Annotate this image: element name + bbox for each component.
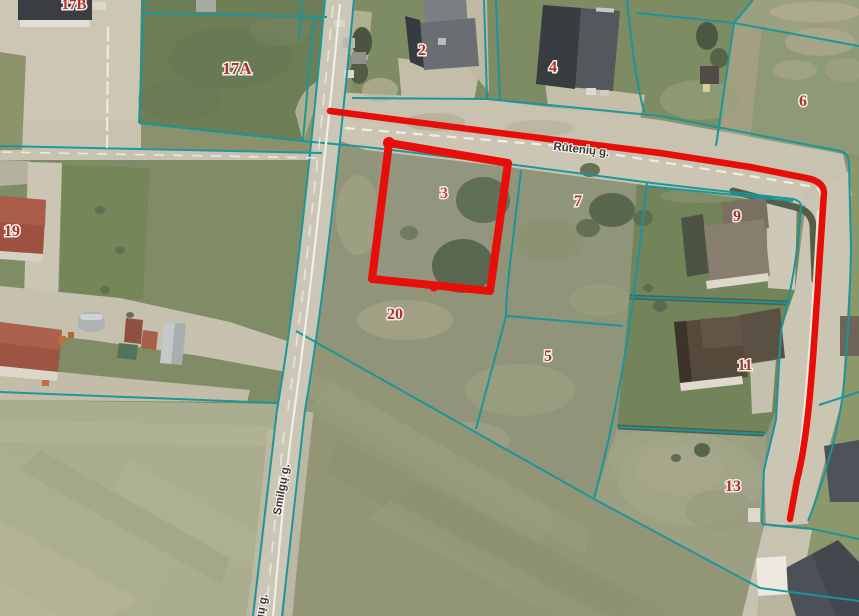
svg-text:17A: 17A: [222, 59, 252, 78]
svg-text:7: 7: [574, 193, 582, 210]
svg-text:13: 13: [725, 478, 741, 495]
svg-text:19: 19: [4, 223, 20, 240]
svg-text:17B: 17B: [61, 0, 86, 13]
svg-text:3: 3: [440, 185, 448, 202]
svg-text:9: 9: [733, 208, 741, 225]
svg-text:5: 5: [544, 348, 552, 365]
svg-text:20: 20: [387, 306, 403, 323]
svg-text:4: 4: [549, 59, 557, 76]
svg-text:2: 2: [418, 42, 426, 59]
svg-text:6: 6: [799, 93, 807, 110]
svg-text:11: 11: [737, 357, 752, 374]
